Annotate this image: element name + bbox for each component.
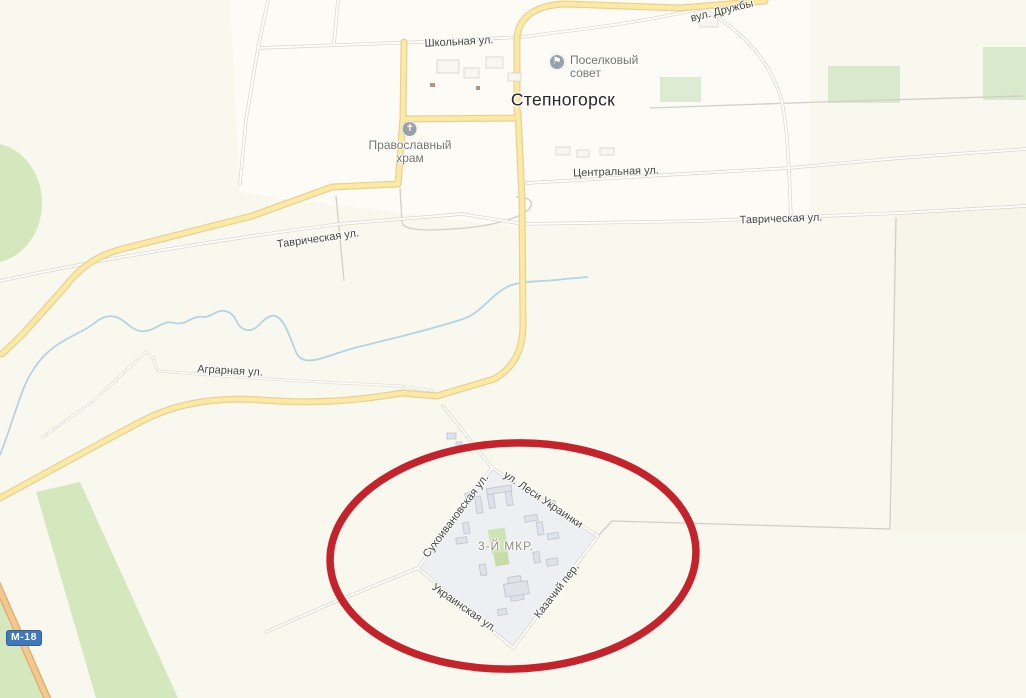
poi-settlement-council[interactable]: ⚑ Поселковый совет (549, 54, 638, 80)
map-viewport[interactable]: Степногорск Школьная ул. вул. Дружбы Цен… (0, 0, 1026, 698)
river (0, 277, 588, 455)
cross-icon: ✝ (402, 121, 418, 137)
flag-icon: ⚑ (549, 54, 565, 70)
route-badge-m18: М-18 (6, 630, 42, 646)
poi-orthodox-church-label: Православный храм (369, 139, 452, 165)
poi-settlement-council-label: Поселковый совет (570, 54, 638, 80)
poi-orthodox-church[interactable]: ✝ Православный храм (369, 121, 452, 165)
district-label-3rd-mkr: 3-Й МКР. (478, 539, 534, 553)
town-label: Степногорск (511, 90, 615, 111)
